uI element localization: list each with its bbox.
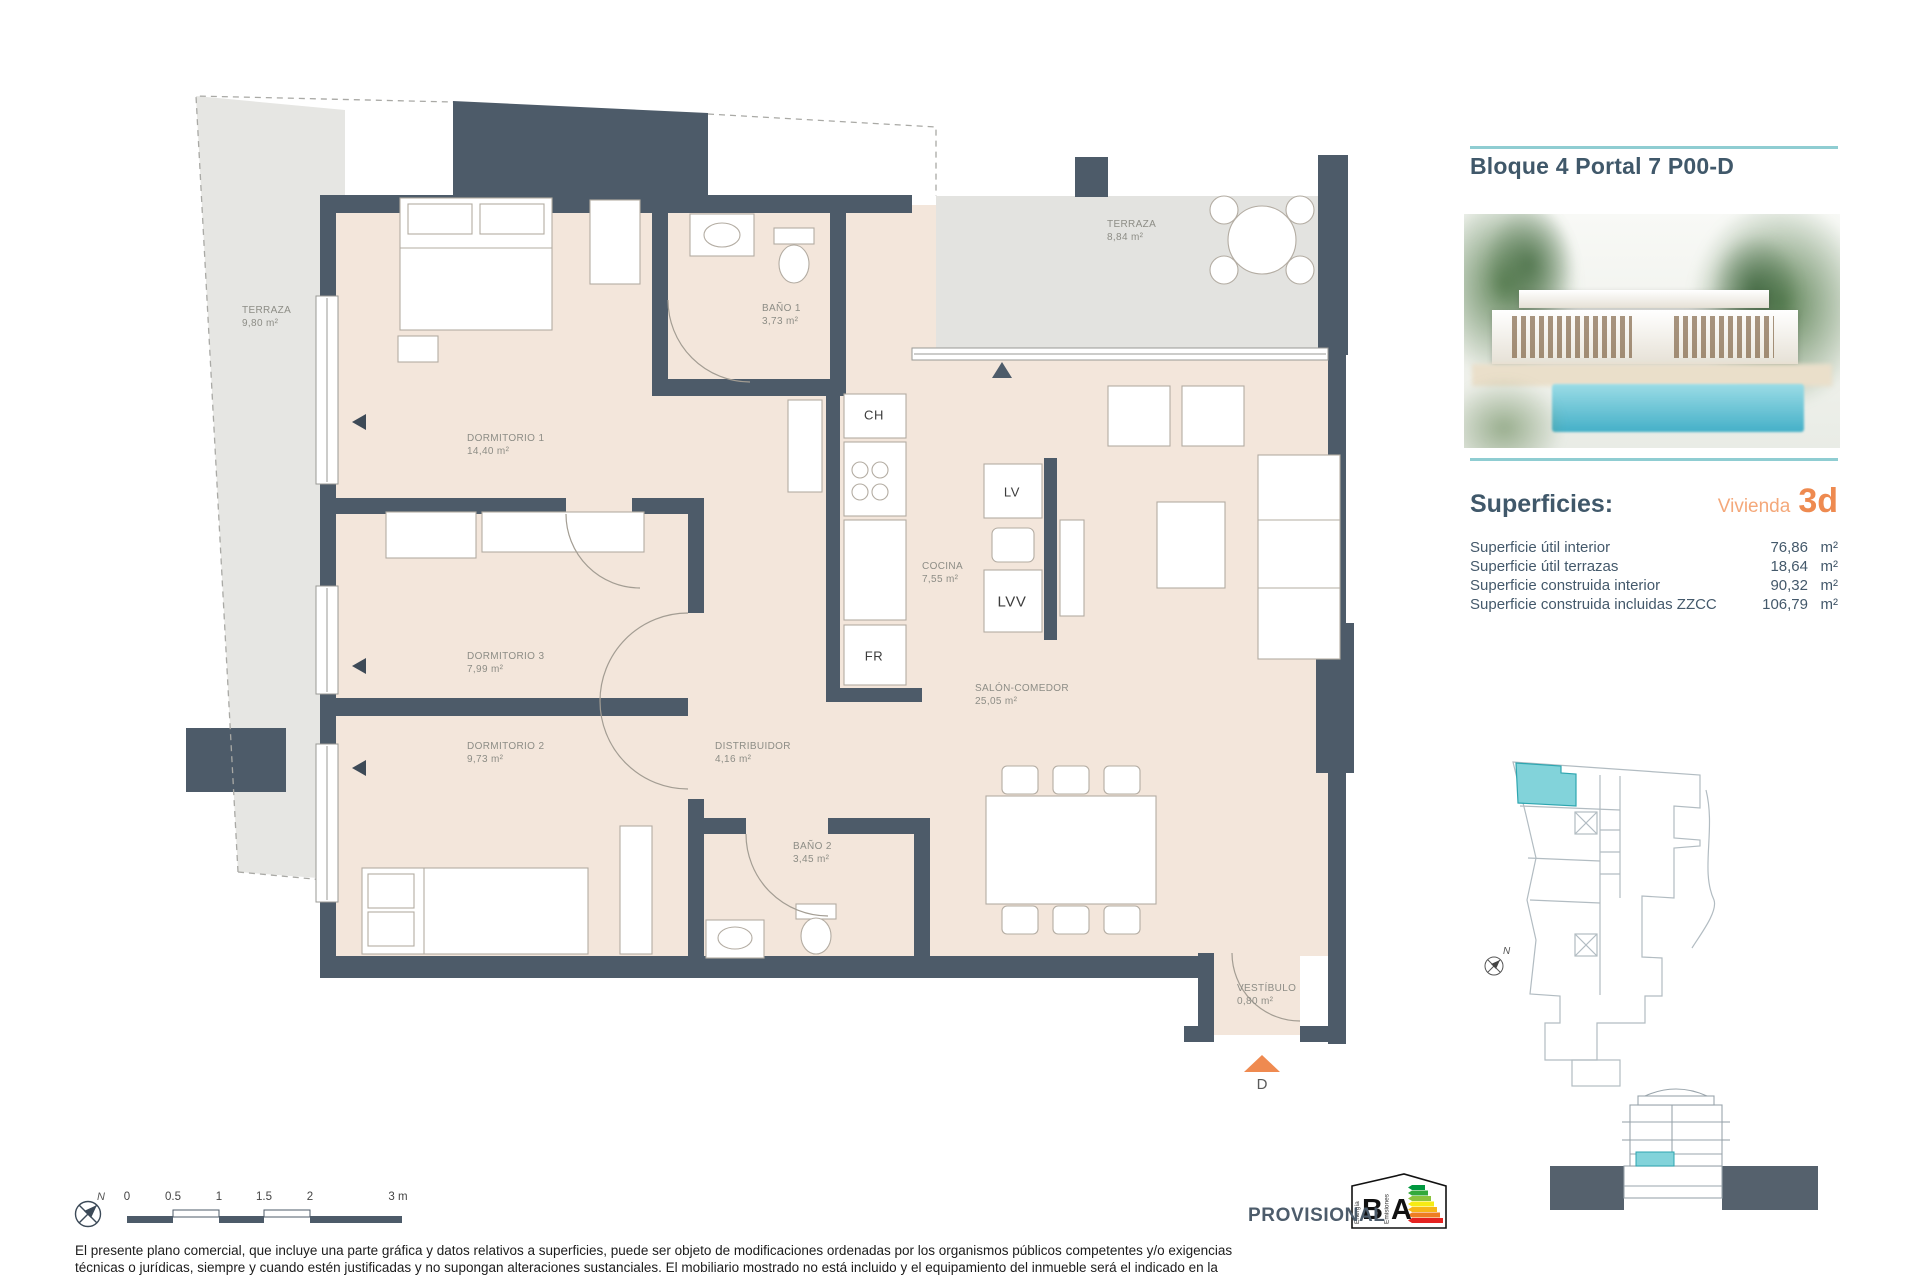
- energy-letter-a: A: [1391, 1194, 1412, 1226]
- north-compass-icon: [76, 1202, 101, 1227]
- site-key-plan: [1513, 762, 1715, 1086]
- room-label-distribuidor: DISTRIBUIDOR 4,16 m²: [715, 740, 791, 766]
- room-label-bano-1: BAÑO 1 3,73 m²: [762, 302, 801, 328]
- room-label-terraza-left: TERRAZA 9,80 m²: [242, 304, 291, 330]
- entrance-letter: D: [1247, 1076, 1277, 1093]
- render-building-upper: [1519, 290, 1769, 308]
- provisional-stamp: PROVISIONAL: [1248, 1205, 1386, 1227]
- superficies-header: Superficies: Vivienda 3d: [1470, 482, 1838, 521]
- divider-top: [1470, 146, 1838, 149]
- appliance-label-fr: FR: [865, 649, 884, 664]
- scale-tick-2: 1: [216, 1191, 222, 1203]
- vivienda-value: 3d: [1798, 482, 1838, 521]
- room-label-cocina: COCINA 7,55 m²: [922, 560, 963, 586]
- superficies-row: Superficie útil terrazas 18,64 m²: [1470, 557, 1838, 576]
- palm-blob: [1464, 378, 1564, 448]
- scale-tick-5: 3 m: [388, 1191, 407, 1203]
- appliance-label-lv: LV: [1004, 485, 1020, 500]
- floor-plan-drawing: N N: [0, 0, 1920, 1280]
- room-label-dormitorio-2: DORMITORIO 2 9,73 m²: [467, 740, 544, 766]
- scale-tick-0: 0: [124, 1191, 130, 1203]
- room-label-salon-comedor: SALÓN-COMEDOR 25,05 m²: [975, 682, 1069, 708]
- superficies-table: Superficie útil interior 76,86 m² Superf…: [1470, 538, 1838, 614]
- vivienda-label: Vivienda: [1718, 496, 1791, 518]
- superficies-row: Superficie útil interior 76,86 m²: [1470, 538, 1838, 557]
- elevation-key: [1550, 1089, 1818, 1210]
- superficies-heading: Superficies:: [1470, 490, 1718, 519]
- elevation-unit-highlight: [1636, 1152, 1674, 1166]
- divider-superficies: [1470, 458, 1838, 461]
- render-pool: [1552, 384, 1804, 432]
- appliance-label-ch: CH: [864, 408, 884, 423]
- render-wood-facade: [1512, 316, 1632, 358]
- scale-tick-1: 0.5: [165, 1191, 181, 1203]
- room-label-dormitorio-1: DORMITORIO 1 14,40 m²: [467, 432, 544, 458]
- superficies-row: Superficie construida incluidas ZZCC 106…: [1470, 595, 1838, 614]
- site-compass-icon: [1485, 957, 1503, 975]
- entrance-arrow-icon: [1244, 1055, 1280, 1072]
- plan-sheet: N N: [0, 0, 1920, 1280]
- site-compass-n: N: [1503, 946, 1511, 957]
- scale-bar: 0 0.5 1 1.5 2 3 m: [124, 1191, 408, 1223]
- scale-tick-3: 1.5: [256, 1191, 272, 1203]
- compass-n: N: [97, 1191, 105, 1203]
- room-label-terraza-top: TERRAZA 8,84 m²: [1107, 218, 1156, 244]
- building-render-image: [1464, 214, 1840, 448]
- room-label-bano-2: BAÑO 2 3,45 m²: [793, 840, 832, 866]
- legal-disclaimer: El presente plano comercial, que incluye…: [75, 1242, 1345, 1276]
- render-wood-facade: [1674, 316, 1774, 358]
- room-label-vestibulo: VESTÍBULO 0,80 m²: [1237, 982, 1296, 1008]
- scale-tick-4: 2: [307, 1191, 313, 1203]
- unit-highlight: [1516, 763, 1576, 806]
- room-label-dormitorio-3: DORMITORIO 3 7,99 m²: [467, 650, 544, 676]
- superficies-row: Superficie construida interior 90,32 m²: [1470, 576, 1838, 595]
- page-title: Bloque 4 Portal 7 P00-D: [1470, 153, 1734, 180]
- appliance-label-lvv: LVV: [997, 594, 1026, 611]
